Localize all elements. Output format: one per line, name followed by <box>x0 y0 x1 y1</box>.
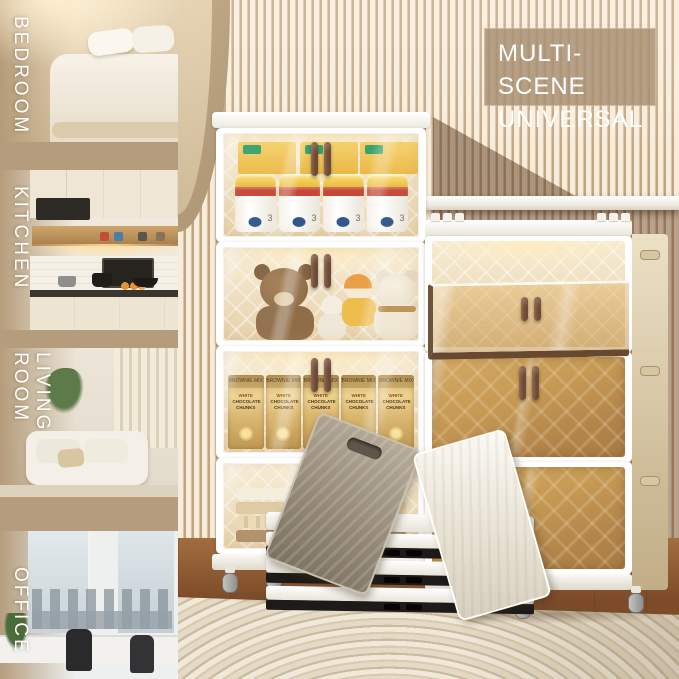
amber-door-open <box>428 280 629 360</box>
mug <box>138 232 147 241</box>
door-handle-left <box>519 366 526 400</box>
door-handle-left <box>311 358 318 392</box>
scene-photo-bedroom: BEDROOM <box>0 0 178 142</box>
bed-throw <box>52 122 178 138</box>
door-handle-right <box>324 358 331 392</box>
side-grip-handle <box>640 366 660 376</box>
storage-unit-cans: 3 3 3 3 <box>216 128 426 242</box>
latch-tab <box>455 213 464 221</box>
caster-wheel <box>628 586 644 613</box>
door-handle-left <box>521 297 528 321</box>
sofa-cushion <box>84 439 128 463</box>
mug <box>114 232 123 241</box>
door-handle-right <box>324 142 331 176</box>
cabinet-top-lid <box>212 112 430 128</box>
door-handle-right <box>532 366 539 400</box>
lid-handle-slot <box>345 436 383 461</box>
scene-photo-living-room: LIVING ROOM <box>0 348 178 497</box>
lower-cabinets <box>30 297 178 330</box>
caster-wheel <box>222 566 238 593</box>
door-handle-right <box>534 297 541 321</box>
latch-tab <box>621 213 630 221</box>
sidebar-label-office: OFFICE <box>9 567 31 655</box>
latch-tab <box>431 213 440 221</box>
cabinet-top-frame <box>425 220 632 236</box>
scene-sidebar: BEDROOM KITCHEN <box>0 0 178 679</box>
throw-pillow <box>57 448 85 469</box>
side-grip-handle <box>640 476 660 486</box>
pillow <box>131 25 175 54</box>
range-hood <box>36 198 90 220</box>
multi-scene-banner: MULTI-SCENE UNIVERSAL <box>484 28 656 106</box>
city-skyline <box>32 589 172 629</box>
mug <box>156 232 165 241</box>
scene-photo-kitchen: KITCHEN <box>0 170 178 330</box>
banner-line-1: MULTI-SCENE <box>498 37 655 103</box>
door-handles <box>425 366 632 405</box>
pot <box>58 276 76 287</box>
side-grip-handle <box>640 250 660 260</box>
sidebar-label-living-room: LIVING ROOM <box>9 352 53 497</box>
door-handles <box>216 142 426 181</box>
wall-shelf <box>425 196 679 210</box>
sidebar-label-kitchen: KITCHEN <box>9 186 31 290</box>
storage-unit-open <box>425 236 632 352</box>
latch-tab <box>597 213 606 221</box>
sidebar-label-bedroom: BEDROOM <box>9 16 31 135</box>
door-handle-left <box>311 142 318 176</box>
storage-unit-bears <box>216 242 426 346</box>
office-chair <box>66 629 92 671</box>
door-handles <box>433 295 629 327</box>
door-handles <box>216 358 426 397</box>
scene-photo-office: OFFICE <box>0 531 178 679</box>
under-cabinet-light <box>32 244 178 256</box>
cabinet-side-panel <box>632 234 668 590</box>
door-handle-right <box>324 254 331 288</box>
product-image: MULTI-SCENE UNIVERSAL 3 3 3 3 <box>0 0 679 679</box>
door-handle-left <box>311 254 318 288</box>
latch-tab <box>609 213 618 221</box>
latch-tab <box>443 213 452 221</box>
banner-line-2: UNIVERSAL <box>498 103 655 136</box>
countertop <box>30 290 178 297</box>
mug <box>100 232 109 241</box>
interior-light <box>432 241 625 267</box>
office-chair <box>130 635 154 673</box>
door-handles <box>216 254 426 293</box>
pot <box>92 273 112 287</box>
